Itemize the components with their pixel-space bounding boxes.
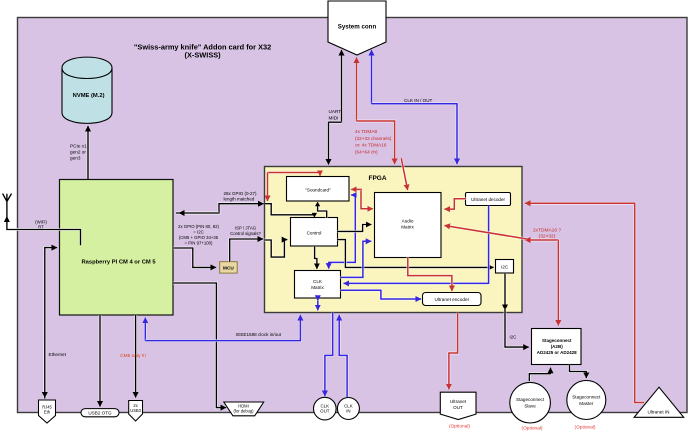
svg-text:(CM5 + GPIO 34+35: (CM5 + GPIO 34+35 <box>179 235 219 240</box>
svg-text:FPGA: FPGA <box>368 175 386 182</box>
svg-text:CLK: CLK <box>344 403 353 408</box>
svg-text:Ultranet encoder: Ultranet encoder <box>434 297 469 302</box>
svg-text:UART: UART <box>329 109 342 114</box>
svg-text:(32×32): (32×32) <box>539 233 556 239</box>
svg-text:"Soundcard": "Soundcard" <box>305 187 331 192</box>
svg-text:(A2B): (A2B) <box>551 344 564 349</box>
svg-text:IEEE1588 clock in/out: IEEE1588 clock in/out <box>236 332 282 337</box>
svg-text:CLK IN / OUT: CLK IN / OUT <box>404 98 433 103</box>
svg-text:I2C: I2C <box>501 265 508 270</box>
svg-text:gen3: gen3 <box>70 156 81 161</box>
svg-text:Matrix: Matrix <box>311 285 324 290</box>
svg-text:NVME (M.2): NVME (M.2) <box>73 93 105 99</box>
svg-text:I2C: I2C <box>510 335 517 340</box>
svg-text:gen2 or: gen2 or <box>70 150 86 155</box>
svg-text:or: 4x TDMA16: or: 4x TDMA16 <box>355 143 387 148</box>
svg-text:MCU: MCU <box>223 265 234 270</box>
svg-text:(X-SWISS): (X-SWISS) <box>185 51 222 60</box>
svg-text:28x GPIO (0-27): 28x GPIO (0-27) <box>224 191 258 196</box>
svg-text:Master: Master <box>579 401 594 406</box>
svg-text:OUT: OUT <box>320 409 330 414</box>
svg-text:Control: Control <box>307 230 322 235</box>
svg-text:CM5 only !!!: CM5 only !!! <box>120 353 146 359</box>
svg-text:Ethernet: Ethernet <box>49 352 67 357</box>
svg-text:= PIN 97+100): = PIN 97+100) <box>185 241 214 246</box>
svg-text:OUT: OUT <box>453 405 463 410</box>
svg-text:Stageconnect: Stageconnect <box>516 397 545 402</box>
svg-text:Ultranet: Ultranet <box>450 399 467 404</box>
svg-text:Audio: Audio <box>402 219 414 224</box>
svg-text:Stageconnect: Stageconnect <box>542 338 572 343</box>
svg-text:Control signals?: Control signals? <box>230 231 261 236</box>
svg-text:CLK: CLK <box>313 279 323 284</box>
svg-text:4x TDMA8: 4x TDMA8 <box>355 129 377 134</box>
svg-text:(Optional): (Optional) <box>449 423 470 429</box>
svg-text:USB3: USB3 <box>130 408 141 413</box>
svg-text:Raspberry PI CM 4 or CM 5: Raspberry PI CM 4 or CM 5 <box>81 260 156 266</box>
svg-text:(64+64 ch): (64+64 ch) <box>355 149 378 154</box>
svg-text:System conn: System conn <box>338 24 377 31</box>
svg-text:(Optional): (Optional) <box>574 424 595 430</box>
svg-text:ISP / JTAG: ISP / JTAG <box>235 226 257 231</box>
svg-text:Stageconnect: Stageconnect <box>572 395 601 400</box>
svg-text:Ultranet decoder: Ultranet decoder <box>471 197 505 202</box>
svg-text:MIDI: MIDI <box>329 116 339 121</box>
svg-text:(Optional): (Optional) <box>521 426 542 432</box>
svg-text:= I2C: = I2C <box>193 230 203 235</box>
svg-text:(for debug): (for debug) <box>233 409 254 414</box>
svg-text:(32+32 channels): (32+32 channels) <box>355 136 392 141</box>
svg-text:CLK: CLK <box>321 403 330 408</box>
svg-text:Ultranet IN: Ultranet IN <box>648 409 670 414</box>
svg-text:IN: IN <box>346 409 350 414</box>
svg-text:Matrix: Matrix <box>401 225 414 230</box>
svg-text:2xTDMA16 ?: 2xTDMA16 ? <box>533 228 561 234</box>
svg-text:Slave: Slave <box>524 403 536 408</box>
svg-text:length matched: length matched <box>224 197 255 202</box>
svg-text:USB2 OTG: USB2 OTG <box>88 411 112 416</box>
svg-text:Eth: Eth <box>44 410 51 415</box>
svg-text:PCIe x1: PCIe x1 <box>70 144 87 149</box>
svg-text:AD2425 or AD2428: AD2425 or AD2428 <box>537 350 577 355</box>
svg-text:2x GPIO (PIN 80, 82): 2x GPIO (PIN 80, 82) <box>178 224 219 229</box>
